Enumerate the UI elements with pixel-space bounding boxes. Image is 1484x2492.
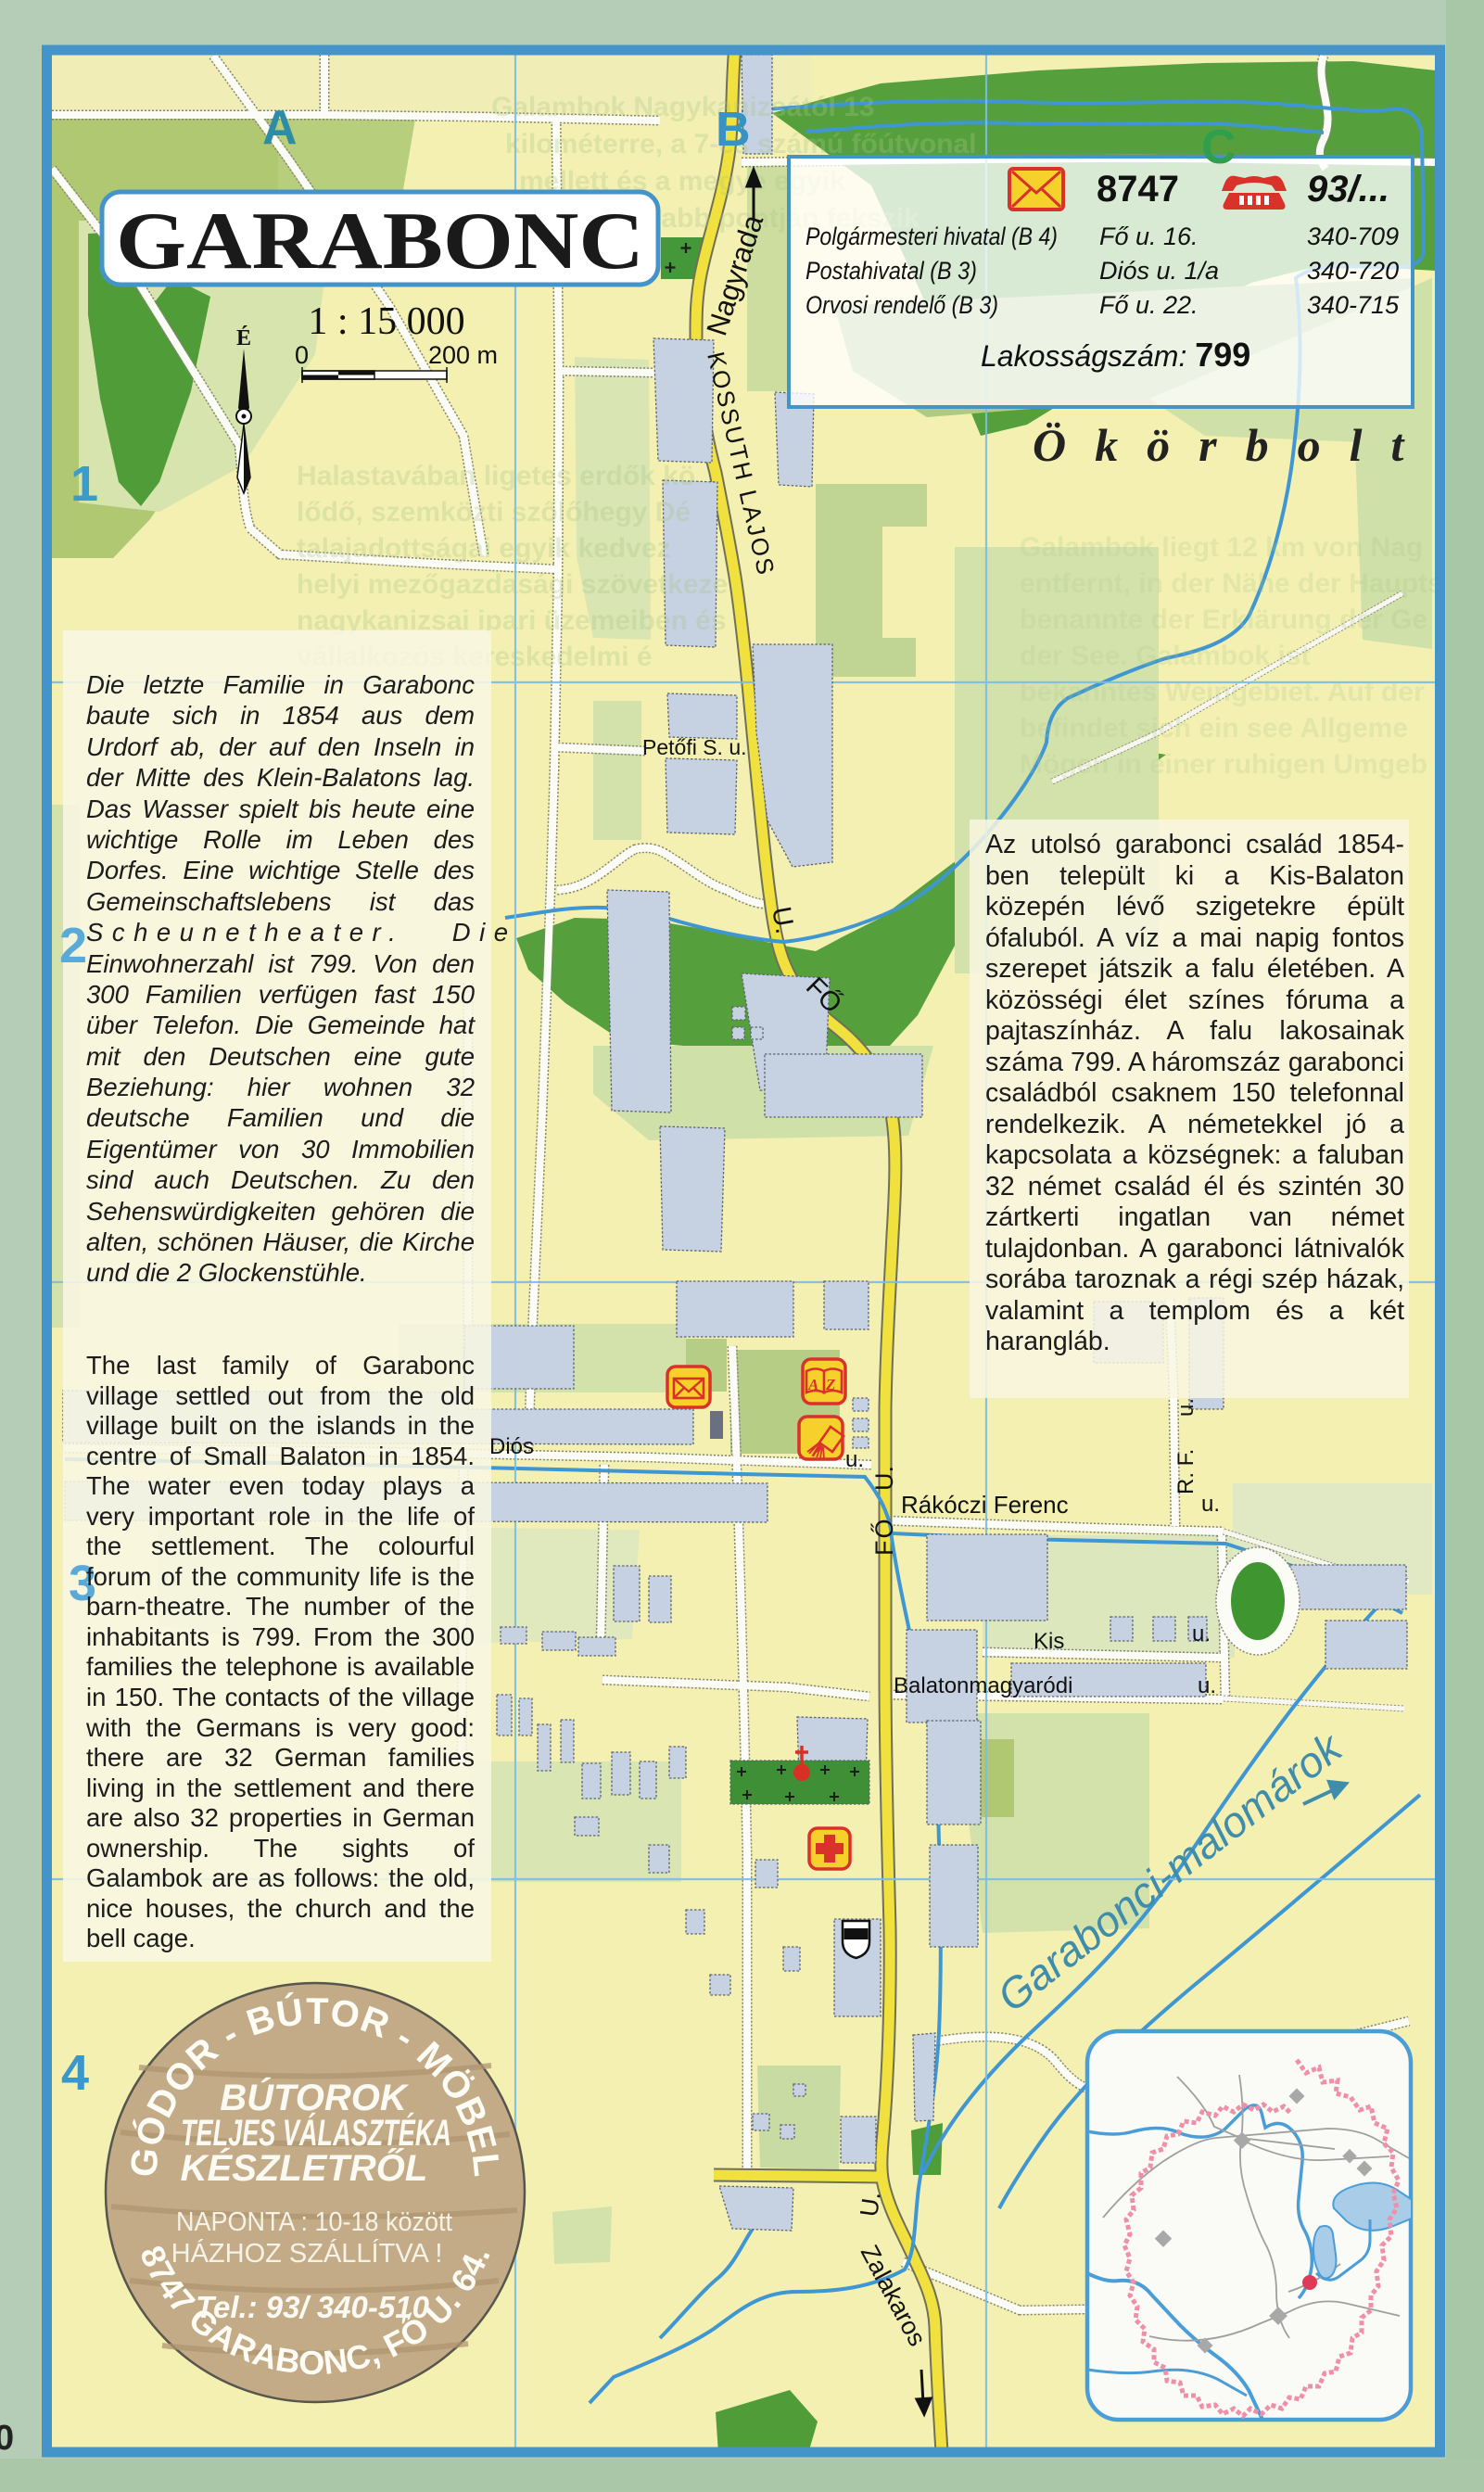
svg-text:U.: U. [766,905,800,936]
svg-text:2: 2 [59,918,87,973]
svg-text:Polgármesteri hivatal (B 4): Polgármesteri hivatal (B 4) [805,222,1058,250]
svg-text:entfernt, in der Nähe der Haup: entfernt, in der Nähe der Haupts [1020,568,1443,599]
svg-text:0: 0 [295,341,309,369]
svg-text:Galambok liegt 12 km von Nag: Galambok liegt 12 km von Nag [1020,532,1423,563]
svg-text:der See. Galambok ist: der See. Galambok ist [1020,641,1310,671]
svg-text:340-709: 340-709 [1307,222,1399,250]
svg-text:NAPONTA : 10-18 között: NAPONTA : 10-18 között [176,2207,452,2237]
svg-text:Mögen in einer ruhigen Umgeb: Mögen in einer ruhigen Umgeb [1020,749,1427,780]
svg-text:1 : 15 000: 1 : 15 000 [308,300,464,343]
svg-text:u.: u. [1201,1492,1220,1517]
svg-text:talajadottságai egyik kedvez: talajadottságai egyik kedvez [297,533,671,564]
svg-text:Rákóczi Ferenc: Rákóczi Ferenc [901,1491,1069,1519]
svg-text:lődő, szemközti szőlőhegy D: lődő, szemközti szőlőhegy Dé [297,497,691,528]
svg-text:Galambok Nagykanizsától 13: Galambok Nagykanizsától 13 [491,92,875,122]
svg-text:340-720: 340-720 [1307,257,1399,285]
svg-text:340-715: 340-715 [1307,291,1400,319]
svg-text:Balatonmagyaródi: Balatonmagyaródi [894,1673,1072,1698]
svg-text:A: A [262,101,298,155]
svg-text:befindet sich ein see Allgeme: befindet sich ein see Allgeme [1020,713,1408,744]
svg-text:93/...: 93/... [1307,169,1389,210]
svg-text:4: 4 [61,2045,89,2101]
svg-text:Kis: Kis [1034,1629,1064,1654]
svg-text:0: 0 [0,2419,14,2458]
svg-text:Halastavában ligetes erdők k: Halastavában ligetes erdők kö [297,461,695,491]
svg-text:Postahivatal (B 3): Postahivatal (B 3) [805,257,977,285]
svg-text:8747: 8747 [1097,169,1179,210]
svg-text:Tel.: 93/ 340-510: Tel.: 93/ 340-510 [196,2290,430,2324]
svg-text:Z: Z [825,1376,835,1393]
svg-text:1: 1 [70,456,98,512]
svg-text:Fő u. 22.: Fő u. 22. [1099,291,1199,319]
svg-text:Fő u. 16.: Fő u. 16. [1099,222,1199,250]
svg-text:Diós u. 1/a: Diós u. 1/a [1099,257,1219,285]
svg-text:Lakosságszám: 799: Lakosságszám: 799 [981,336,1250,374]
svg-text:Orvosi rendelő (B 3): Orvosi rendelő (B 3) [805,291,998,319]
svg-text:Diós: Diós [489,1434,534,1459]
svg-text:bekanntes Weingebiet. Auf der: bekanntes Weingebiet. Auf der [1020,677,1425,707]
svg-text:B: B [716,103,751,157]
svg-text:É: É [236,326,251,350]
svg-text:HÁZHOZ SZÁLLÍTVA !: HÁZHOZ SZÁLLÍTVA ! [171,2238,443,2269]
svg-text:benannte der Erklärung der Ge: benannte der Erklärung der Ge [1020,604,1427,635]
svg-text:A: A [807,1376,818,1393]
svg-text:helyi mezőgazdasági szövetkeze: helyi mezőgazdasági szövetkeze [297,569,728,600]
svg-text:C: C [1201,121,1237,174]
svg-text:u.: u. [1173,1398,1199,1417]
svg-text:200 m: 200 m [428,341,498,369]
svg-text:u.: u. [1198,1673,1216,1698]
svg-text:Petőfi S. u.: Petőfi S. u. [642,735,747,759]
svg-text:U.: U. [855,2190,885,2219]
svg-text:u.: u. [845,1447,864,1472]
svg-text:U.: U. [870,1466,898,1491]
svg-text:FŐ: FŐ [869,1518,898,1557]
svg-text:Ökörbolt: Ökörbolt [1033,419,1432,471]
svg-text:u.: u. [1192,1621,1211,1646]
svg-text:GARABONC: GARABONC [116,197,644,286]
svg-text:KÉSZLETRŐL: KÉSZLETRŐL [181,2146,428,2189]
svg-text:R. F.: R. F. [1173,1449,1199,1494]
